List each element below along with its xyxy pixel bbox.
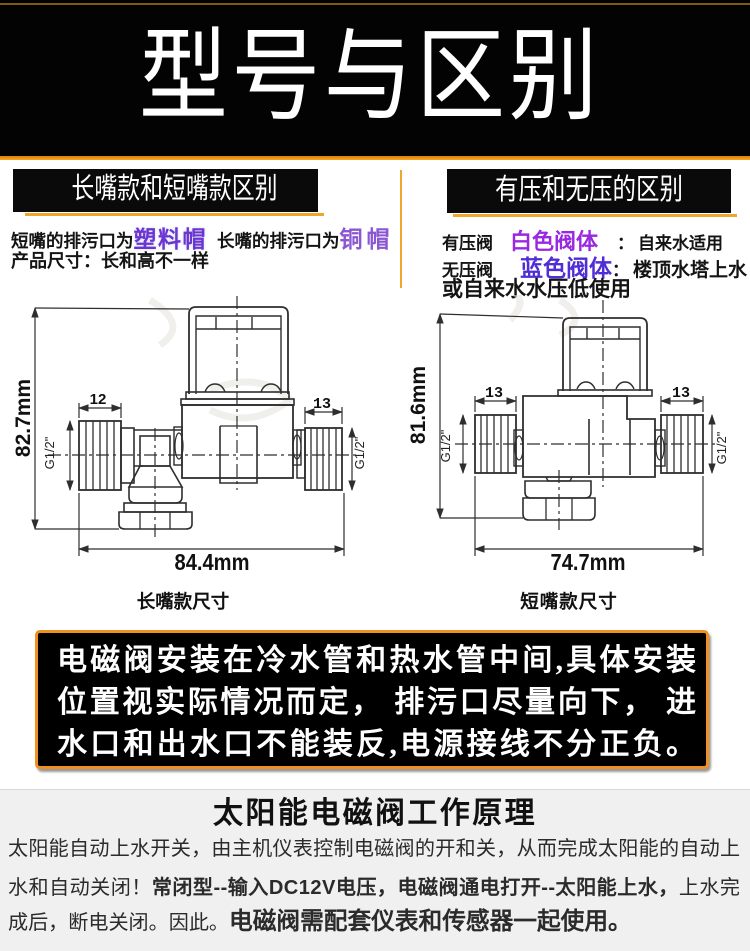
svg-text:G1/2": G1/2" xyxy=(42,436,57,469)
svg-text:82.7mm: 82.7mm xyxy=(12,379,35,457)
svg-text:12: 12 xyxy=(90,391,107,408)
svg-text:G1/2": G1/2" xyxy=(438,429,453,462)
svg-text:13: 13 xyxy=(672,385,690,402)
svg-text:13: 13 xyxy=(485,385,503,402)
svg-text:G1/2": G1/2" xyxy=(714,431,729,464)
svg-text:13: 13 xyxy=(313,396,331,413)
svg-text:G1/2": G1/2" xyxy=(352,436,367,469)
svg-text:74.7mm: 74.7mm xyxy=(551,549,626,576)
svg-text:84.4mm: 84.4mm xyxy=(175,549,250,576)
svg-text:81.6mm: 81.6mm xyxy=(407,366,430,444)
